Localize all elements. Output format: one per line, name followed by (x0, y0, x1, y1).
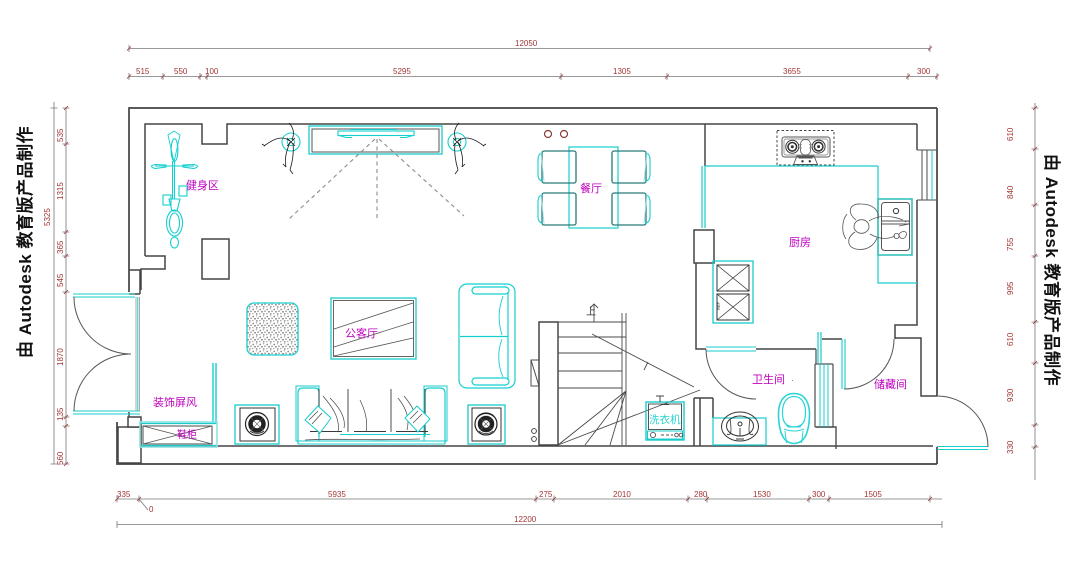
svg-text:1505: 1505 (864, 490, 882, 499)
svg-text:560: 560 (56, 451, 65, 465)
svg-text:1530: 1530 (753, 490, 771, 499)
svg-text:610: 610 (1006, 332, 1015, 346)
svg-text:550: 550 (174, 67, 188, 76)
svg-text:1870: 1870 (56, 348, 65, 366)
svg-text:5325: 5325 (43, 208, 52, 226)
svg-text:由 Autodesk 教育版产品制作: 由 Autodesk 教育版产品制作 (15, 126, 35, 358)
svg-text:610: 610 (1006, 127, 1015, 141)
svg-text:餐厅: 餐厅 (580, 181, 602, 195)
svg-text:12200: 12200 (514, 515, 537, 524)
svg-text:755: 755 (1006, 237, 1015, 251)
svg-text:995: 995 (1006, 281, 1015, 295)
svg-text:545: 545 (56, 273, 65, 287)
svg-text:5295: 5295 (393, 67, 411, 76)
svg-text:365: 365 (56, 240, 65, 254)
svg-text:0: 0 (149, 505, 154, 514)
svg-text:公客厅: 公客厅 (345, 326, 378, 340)
svg-text:1305: 1305 (613, 67, 631, 76)
svg-text:鞋柜: 鞋柜 (177, 428, 197, 441)
svg-text:厨房: 厨房 (789, 236, 811, 249)
svg-text:300: 300 (917, 67, 931, 76)
svg-text:由 Autodesk 教育版产品制作: 由 Autodesk 教育版产品制作 (1042, 154, 1062, 386)
svg-text:REF: REF (716, 301, 721, 310)
svg-text:3655: 3655 (783, 67, 801, 76)
svg-text:275: 275 (539, 490, 553, 499)
svg-text:300: 300 (812, 490, 826, 499)
svg-text:健身区: 健身区 (186, 178, 219, 192)
svg-text:1315: 1315 (56, 182, 65, 200)
svg-text:280: 280 (694, 490, 708, 499)
svg-text:930: 930 (1006, 388, 1015, 402)
svg-text:上: 上 (586, 306, 596, 318)
svg-text:装饰屏风: 装饰屏风 (153, 395, 197, 409)
svg-text:储藏间: 储藏间 (874, 377, 907, 391)
svg-text:5935: 5935 (328, 490, 346, 499)
svg-text:100: 100 (205, 67, 219, 76)
svg-text:335: 335 (117, 490, 131, 499)
svg-text:洗衣机: 洗衣机 (649, 413, 681, 426)
svg-text:2010: 2010 (613, 490, 631, 499)
svg-text:12050: 12050 (515, 39, 538, 48)
svg-text:515: 515 (136, 67, 150, 76)
svg-text:330: 330 (1006, 440, 1015, 454)
svg-text:535: 535 (56, 128, 65, 142)
svg-text:840: 840 (1006, 185, 1015, 199)
svg-text:135: 135 (56, 407, 65, 421)
